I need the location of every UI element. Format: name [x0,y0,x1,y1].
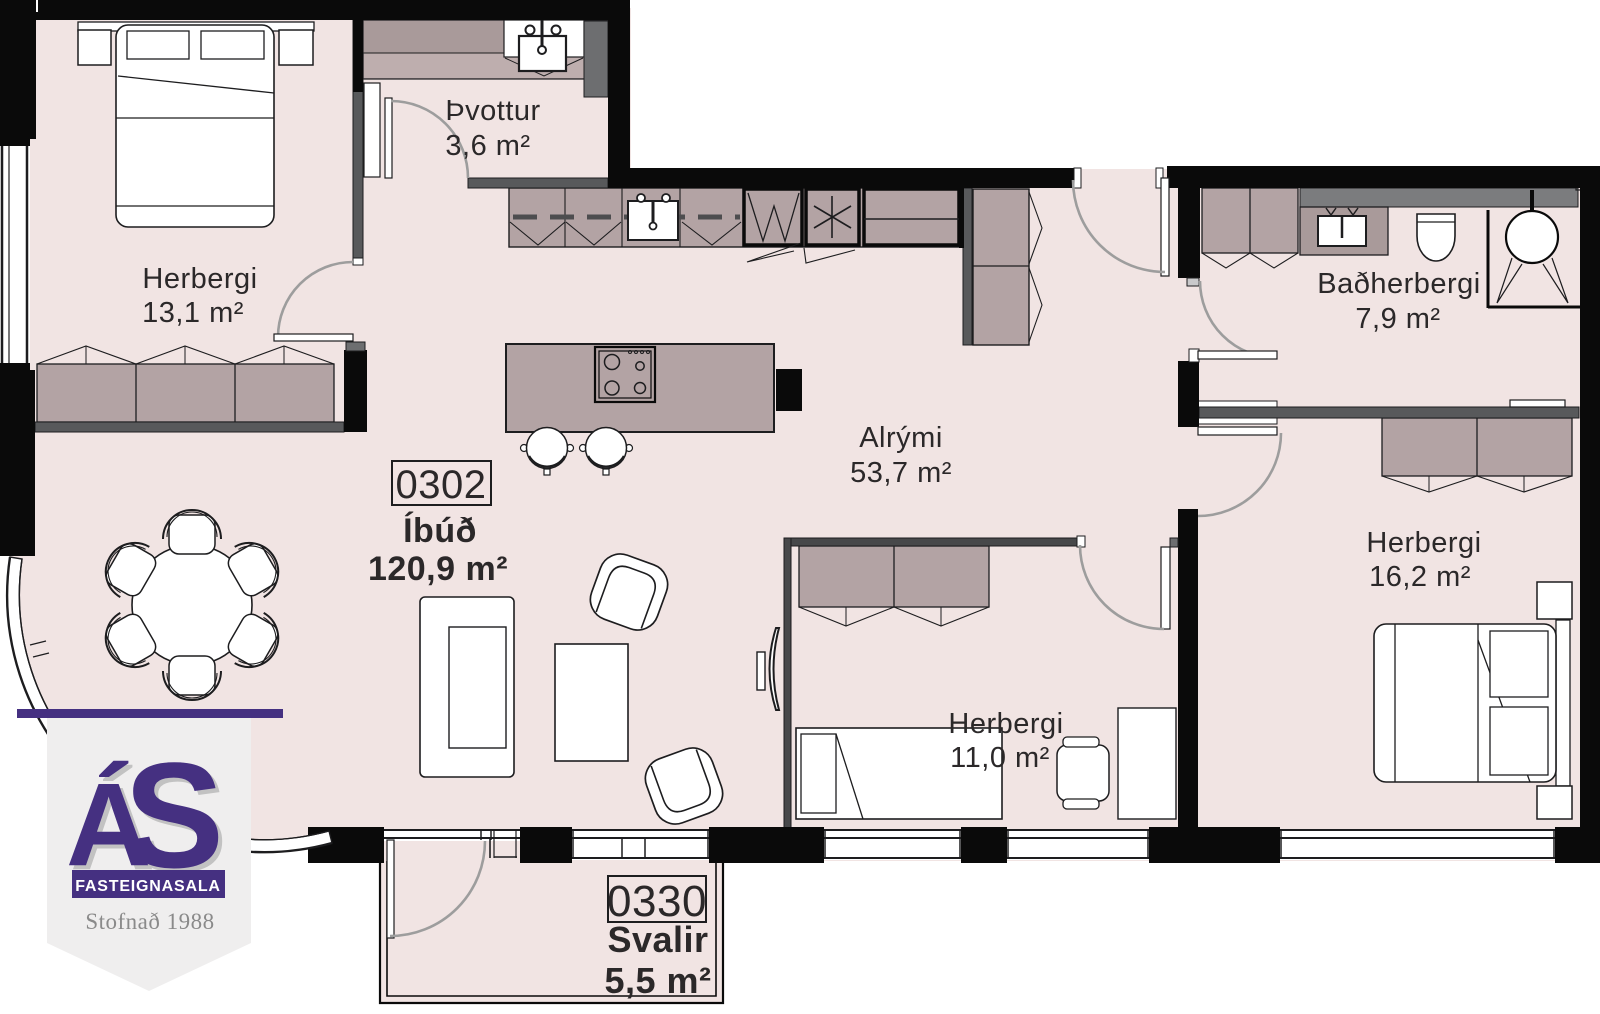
svg-text:Íbúð: Íbúð [403,512,477,550]
svg-text:53,7 m²: 53,7 m² [850,457,952,489]
svg-text:3,6 m²: 3,6 m² [445,130,530,162]
svg-text:Herbergi: Herbergi [142,263,257,295]
svg-text:Alrými: Alrými [859,422,943,454]
svg-text:FASTEIGNASALA: FASTEIGNASALA [75,878,221,895]
svg-text:Herbergi: Herbergi [948,708,1063,740]
svg-text:120,9 m²: 120,9 m² [368,550,508,588]
svg-text:Herbergi: Herbergi [1366,527,1481,559]
svg-text:Svalir: Svalir [607,919,708,960]
svg-text:11,0 m²: 11,0 m² [950,742,1050,774]
svg-text:5,5 m²: 5,5 m² [604,960,711,1001]
svg-text:13,1 m²: 13,1 m² [142,297,244,329]
svg-text:7,9 m²: 7,9 m² [1355,303,1440,335]
svg-text:0302: 0302 [396,463,487,507]
svg-text:Þvottur: Þvottur [445,95,540,127]
svg-text:16,2 m²: 16,2 m² [1369,561,1471,593]
svg-text:Stofnað 1988: Stofnað 1988 [85,909,214,934]
svg-text:Baðherbergi: Baðherbergi [1317,268,1481,300]
